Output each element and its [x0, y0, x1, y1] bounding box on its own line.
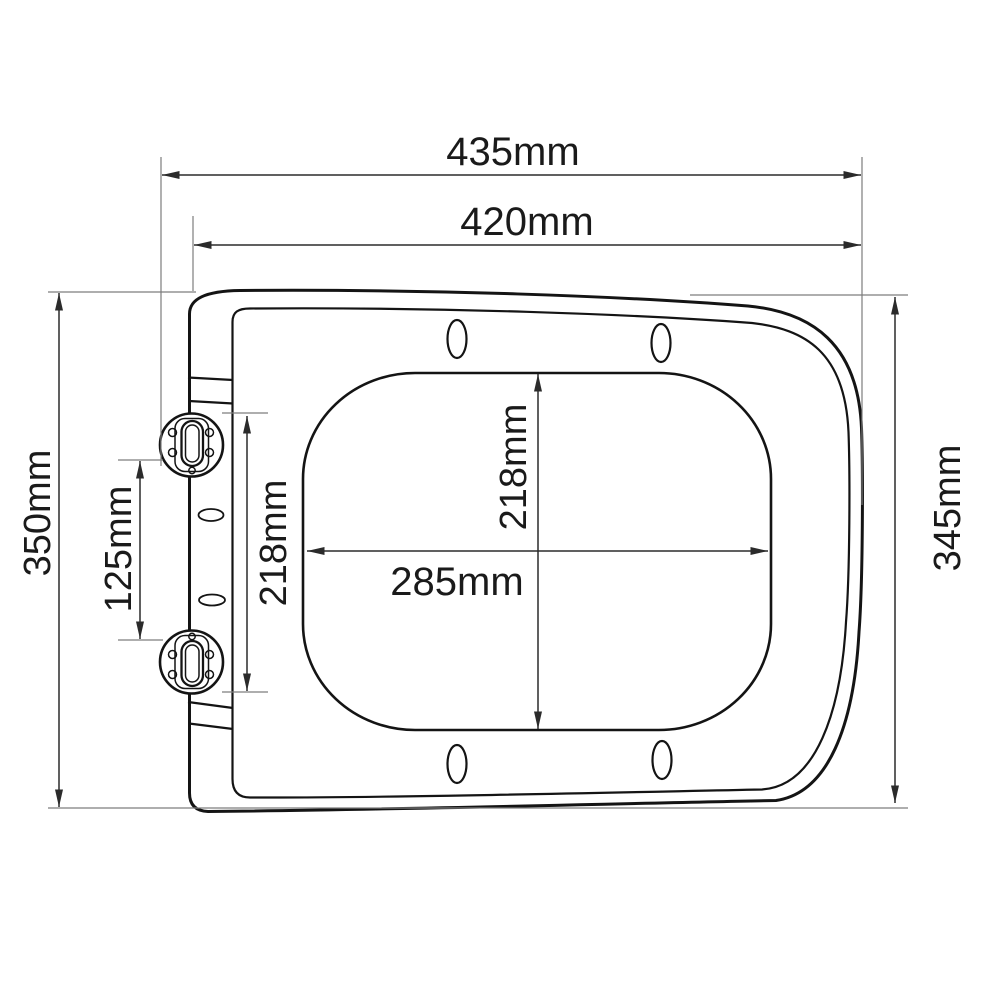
technical-drawing-canvas: 435mm 420mm 350mm 125mm 218mm 218mm 285m… — [0, 0, 1000, 1000]
label-opening-length: 218mm — [493, 404, 535, 531]
label-height-left: 350mm — [17, 450, 59, 577]
label-opening-width: 285mm — [390, 560, 523, 604]
label-width-seat: 420mm — [460, 200, 593, 244]
toilet-seat-dimension-diagram: 435mm 420mm 350mm 125mm 218mm 218mm 285m… — [0, 0, 1000, 1000]
label-width-overall: 435mm — [446, 130, 579, 174]
label-height-right: 345mm — [927, 445, 969, 572]
hinge-top — [160, 414, 223, 477]
label-hinge-spacing: 125mm — [98, 486, 140, 613]
hinge-bottom — [160, 631, 223, 694]
label-hinge-span: 218mm — [253, 480, 295, 607]
